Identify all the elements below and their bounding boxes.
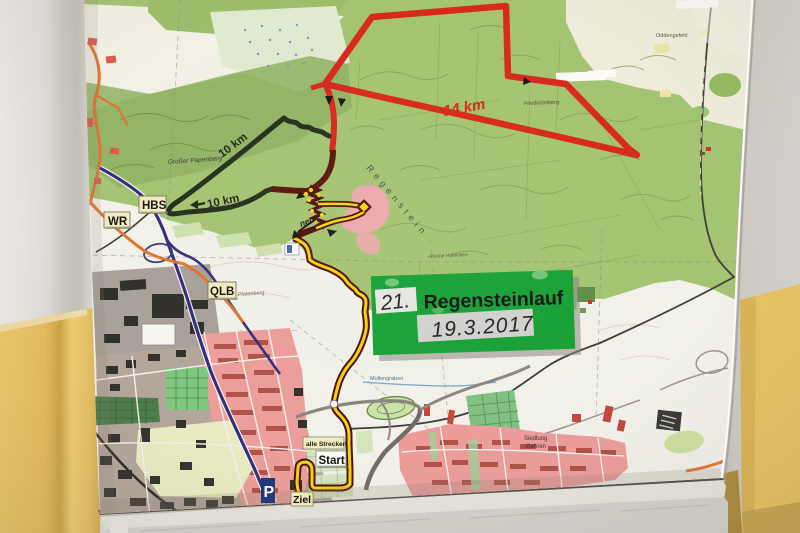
svg-text:HBS: HBS [142,200,167,212]
svg-text:Regensteinlauf: Regensteinlauf [423,287,564,313]
svg-text:Start: Start [319,455,345,467]
svg-text:Oddengefehl: Oddengefehl [656,33,688,39]
svg-text:Gehren: Gehren [526,444,546,450]
svg-text:21.: 21. [379,289,411,315]
svg-text:alle Strecken: alle Strecken [306,441,347,448]
svg-text:Ziel: Ziel [293,494,311,506]
svg-text:P: P [264,484,275,501]
svg-text:Mollengraben: Mollengraben [370,376,403,382]
svg-text:Siedlung: Siedlung [524,436,547,442]
svg-text:QLB: QLB [210,286,234,298]
svg-text:Friedrichsberg: Friedrichsberg [524,100,559,107]
svg-text:WR: WR [108,216,128,228]
